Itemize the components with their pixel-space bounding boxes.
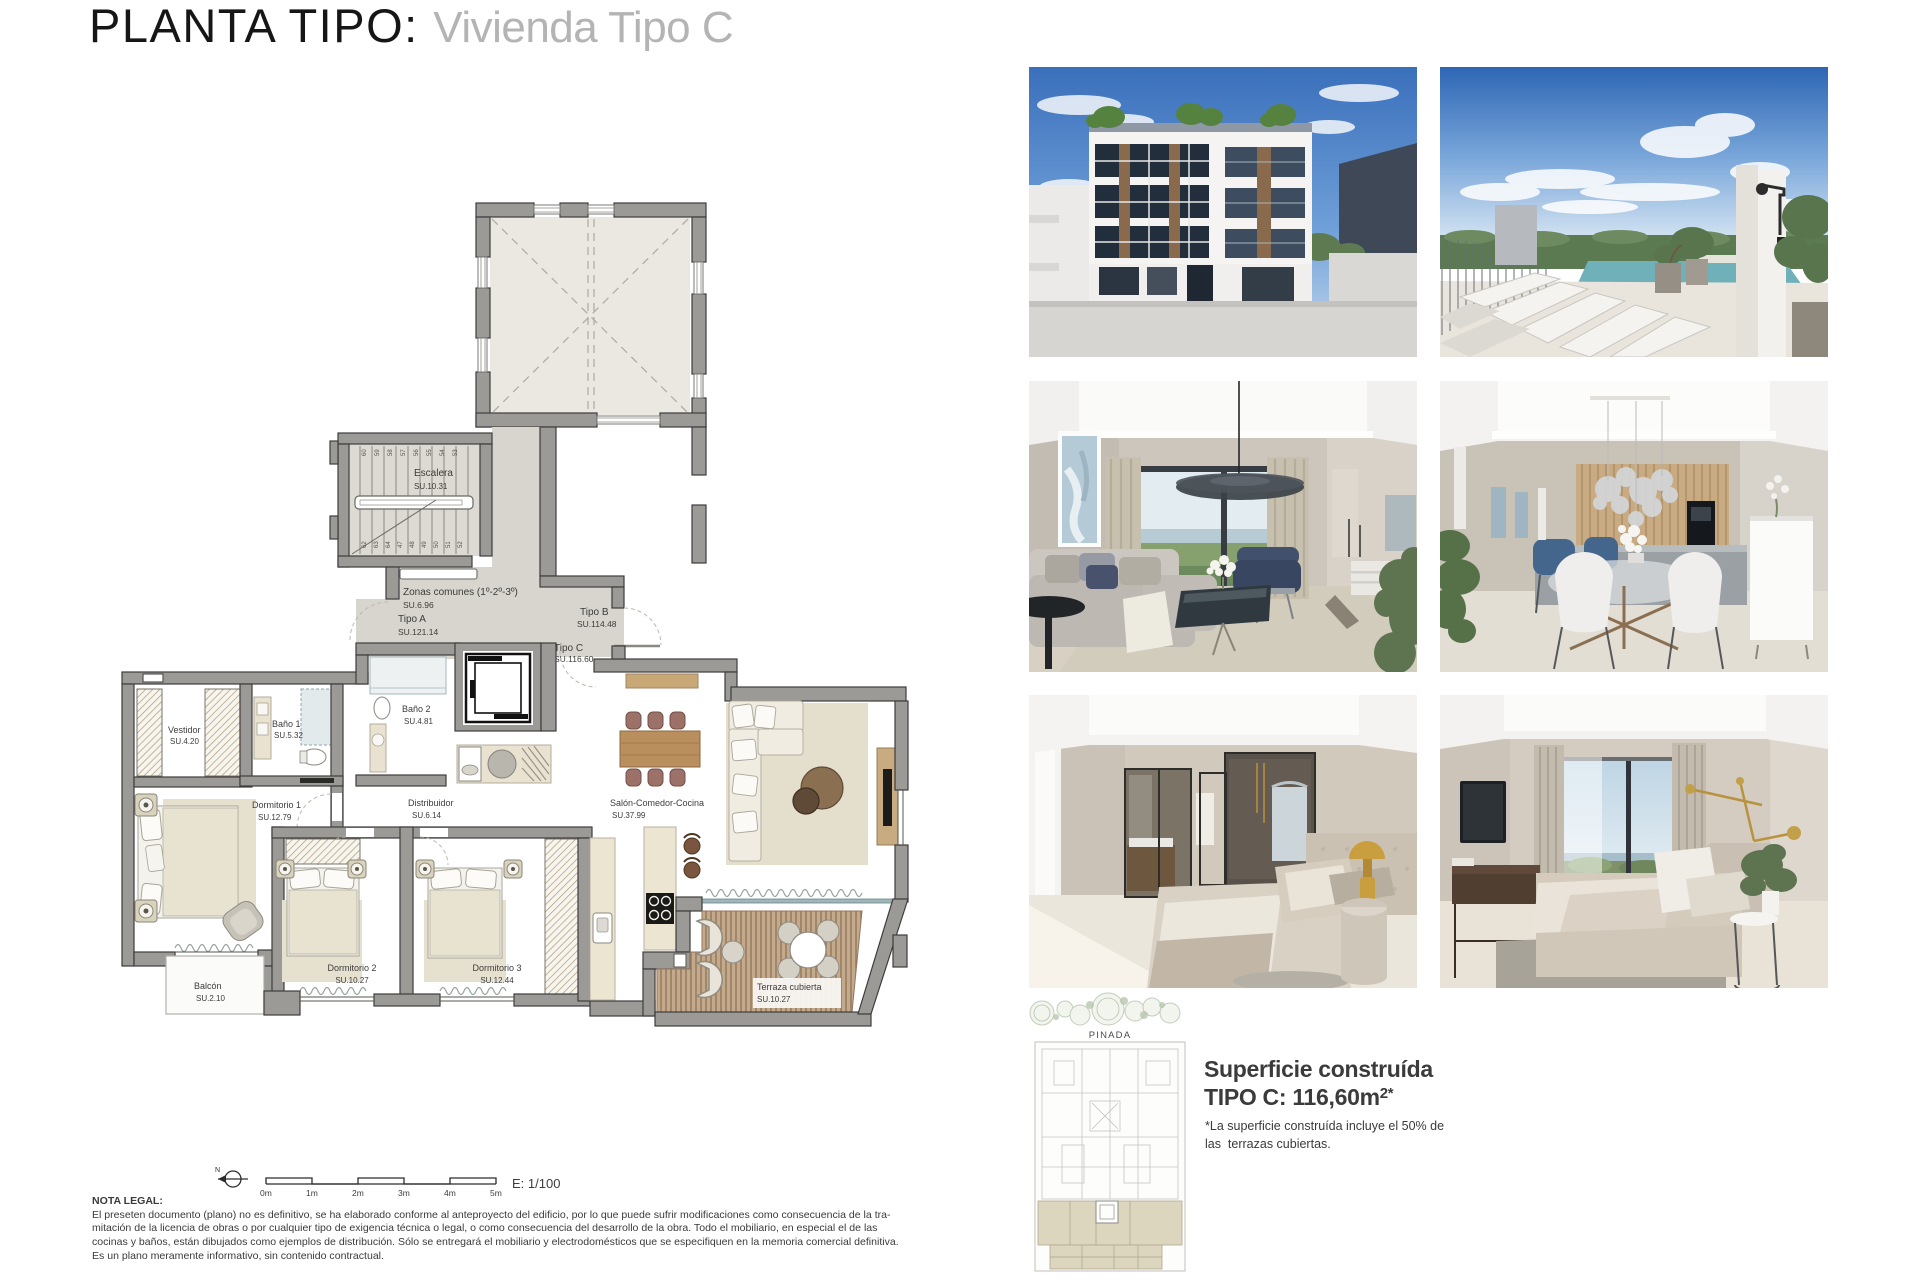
svg-text:SU.4.81: SU.4.81 xyxy=(404,717,433,726)
svg-text:Balcón: Balcón xyxy=(194,981,222,991)
svg-text:Distribuidor: Distribuidor xyxy=(408,798,454,808)
svg-text:55: 55 xyxy=(427,449,433,456)
svg-text:PINADA: PINADA xyxy=(1089,1030,1132,1041)
svg-text:59: 59 xyxy=(375,449,381,456)
svg-text:E: 1/100: E: 1/100 xyxy=(512,1176,560,1191)
svg-text:SU.6.96: SU.6.96 xyxy=(403,600,434,610)
svg-text:SU.12.44: SU.12.44 xyxy=(480,976,514,985)
svg-text:Dormitorio 3: Dormitorio 3 xyxy=(472,963,521,973)
svg-text:Dormitorio 1: Dormitorio 1 xyxy=(252,800,301,810)
svg-text:Terraza cubierta: Terraza cubierta xyxy=(757,982,822,992)
svg-text:Salón-Comedor-Cocina: Salón-Comedor-Cocina xyxy=(610,798,704,808)
svg-text:Tipo C: Tipo C xyxy=(554,643,583,654)
svg-text:47: 47 xyxy=(398,541,404,548)
svg-text:Escalera: Escalera xyxy=(414,468,453,479)
svg-text:Dormitorio 2: Dormitorio 2 xyxy=(327,963,376,973)
svg-text:SU.37.99: SU.37.99 xyxy=(612,811,646,820)
svg-text:Vestidor: Vestidor xyxy=(168,725,201,735)
svg-text:SU.10.27: SU.10.27 xyxy=(335,976,369,985)
svg-text:48: 48 xyxy=(410,541,416,548)
svg-text:SU.116.60: SU.116.60 xyxy=(554,654,594,664)
svg-text:Baño 1: Baño 1 xyxy=(272,719,301,729)
svg-text:49: 49 xyxy=(422,541,428,548)
svg-text:SU.10.31: SU.10.31 xyxy=(414,482,448,491)
svg-text:SU.10.27: SU.10.27 xyxy=(757,995,791,1004)
svg-text:N: N xyxy=(215,1167,220,1174)
svg-text:SU.4.20: SU.4.20 xyxy=(170,737,199,746)
svg-text:SU.6.14: SU.6.14 xyxy=(412,811,441,820)
svg-text:53: 53 xyxy=(453,449,459,456)
svg-text:SU.5.32: SU.5.32 xyxy=(274,731,303,740)
svg-text:SU.2.10: SU.2.10 xyxy=(196,994,225,1003)
svg-text:SU.12.79: SU.12.79 xyxy=(258,813,292,822)
svg-text:Baño 2: Baño 2 xyxy=(402,704,431,714)
svg-text:Zonas comunes (1º-2º-3º): Zonas comunes (1º-2º-3º) xyxy=(403,587,518,598)
svg-text:Tipo A: Tipo A xyxy=(398,614,426,625)
svg-text:50: 50 xyxy=(434,541,440,548)
svg-text:64: 64 xyxy=(386,541,392,548)
svg-text:56: 56 xyxy=(414,449,420,456)
svg-text:SU.121.14: SU.121.14 xyxy=(398,627,438,637)
svg-text:Tipo B: Tipo B xyxy=(580,607,609,618)
svg-text:63: 63 xyxy=(374,541,380,548)
svg-text:54: 54 xyxy=(440,449,446,456)
svg-text:52: 52 xyxy=(458,541,464,548)
svg-text:SU.114.48: SU.114.48 xyxy=(577,619,617,629)
svg-text:51: 51 xyxy=(446,541,452,548)
svg-text:57: 57 xyxy=(401,449,407,456)
svg-text:60: 60 xyxy=(362,449,368,456)
svg-text:58: 58 xyxy=(388,449,394,456)
